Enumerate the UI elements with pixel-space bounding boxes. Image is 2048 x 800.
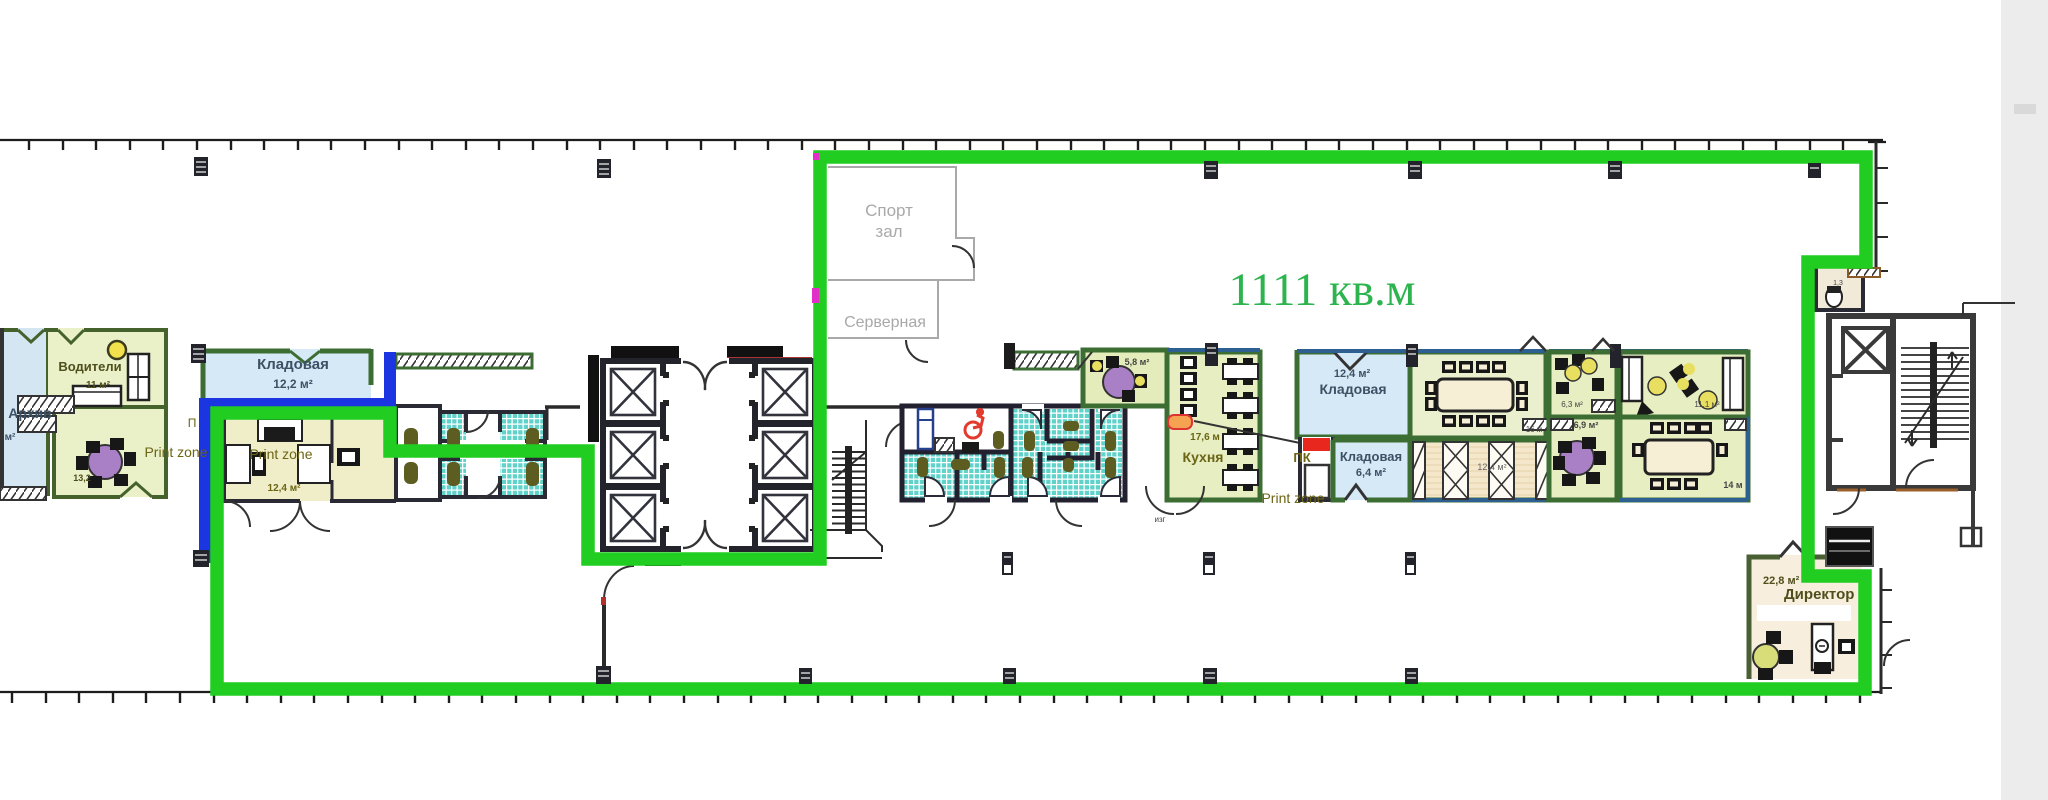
svg-text:Водители: Водители (58, 359, 121, 374)
svg-text:1,3: 1,3 (1833, 280, 1843, 287)
svg-text:изг: изг (1154, 515, 1165, 524)
svg-text:1111 кв.м: 1111 кв.м (1228, 264, 1415, 316)
svg-text:П: П (188, 416, 197, 430)
svg-text:ПК: ПК (1293, 450, 1310, 465)
svg-text:Кладовая: Кладовая (1340, 449, 1402, 464)
svg-text:Print zone: Print zone (1261, 490, 1324, 506)
svg-text:Спорт: Спорт (865, 201, 913, 220)
svg-text:Кладовая: Кладовая (1319, 381, 1386, 397)
svg-text:11,1 м²: 11,1 м² (1694, 400, 1720, 409)
svg-text:Кухня: Кухня (1183, 449, 1224, 465)
svg-text:Print zone: Print zone (144, 444, 207, 460)
svg-text:м²: м² (5, 432, 16, 443)
svg-text:Print zone: Print zone (249, 446, 312, 462)
svg-text:зал: зал (875, 222, 902, 241)
svg-text:13,2: 13,2 (73, 473, 91, 483)
svg-text:12,4 м²: 12,4 м² (1334, 368, 1371, 380)
svg-text:11 м²: 11 м² (86, 380, 111, 391)
svg-text:Директор: Директор (1784, 586, 1854, 603)
svg-text:12,4 м²: 12,4 м² (268, 483, 302, 494)
svg-text:6,3 м²: 6,3 м² (1561, 400, 1583, 409)
svg-text:Архив: Архив (8, 405, 52, 421)
svg-text:5,8 м²: 5,8 м² (1125, 357, 1150, 367)
svg-text:14 м: 14 м (1723, 480, 1743, 490)
svg-text:Серверная: Серверная (844, 314, 926, 331)
svg-text:12,2 м²: 12,2 м² (273, 377, 313, 391)
svg-text:Кладовая: Кладовая (257, 356, 329, 373)
svg-text:6,9 м²: 6,9 м² (1574, 420, 1599, 430)
svg-text:17,6 м: 17,6 м (1190, 432, 1220, 443)
svg-text:12,4 м²: 12,4 м² (1477, 462, 1506, 472)
svg-text:16 м: 16 м (1526, 425, 1543, 434)
svg-text:6,4 м²: 6,4 м² (1356, 467, 1386, 479)
